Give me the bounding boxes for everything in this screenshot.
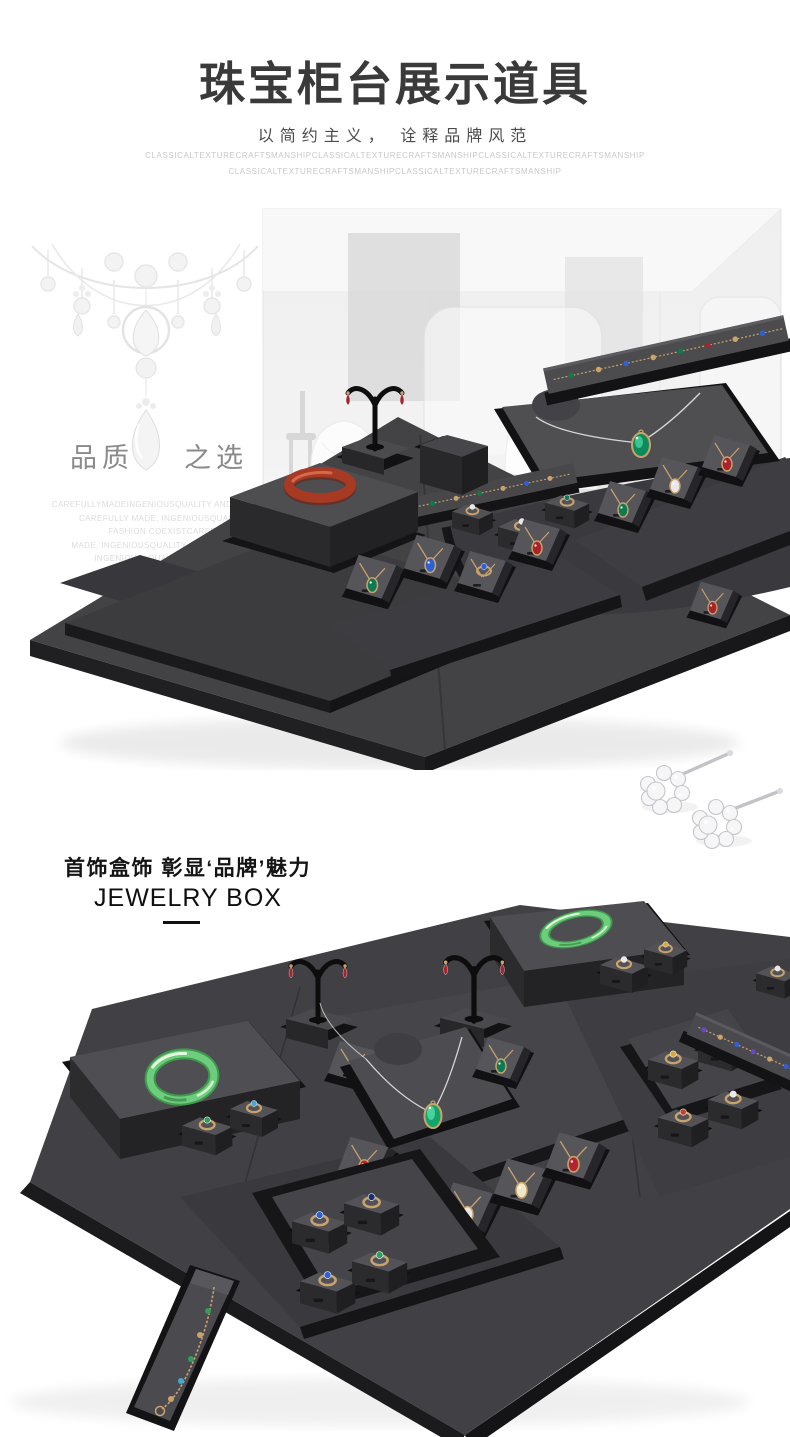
- page-subtitle: 以简约主义， 诠释品牌风范: [0, 122, 790, 146]
- jewelry-box-photo: [0, 897, 790, 1437]
- product-detail-page: 珠宝柜台展示道具 以简约主义， 诠释品牌风范 CLASSICALTEXTUREC…: [0, 0, 790, 1437]
- jewelry-box-heading: 首饰盒饰 彰显‘品牌’魅力: [64, 852, 311, 882]
- watermark-line-2: CLASSICALTEXTURECRAFTSMANSHIPCLASSICALTE…: [0, 167, 790, 176]
- counter-display-photo: [0, 195, 790, 770]
- page-title: 珠宝柜台展示道具: [0, 48, 790, 114]
- stud-earrings-photo: [600, 735, 790, 852]
- watermark-line-1: CLASSICALTEXTURECRAFTSMANSHIPCLASSICALTE…: [0, 151, 790, 160]
